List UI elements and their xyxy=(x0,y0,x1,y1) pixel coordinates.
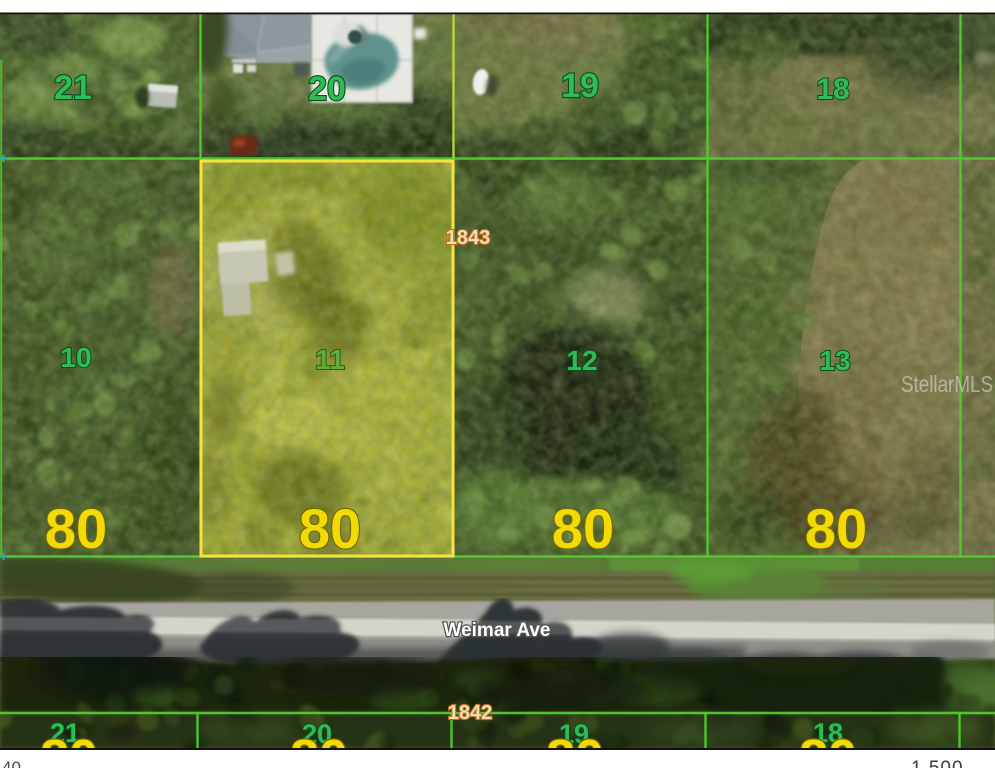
svg-text:19: 19 xyxy=(561,67,599,105)
svg-text:80: 80 xyxy=(45,497,107,560)
svg-text:StellarMLS: StellarMLS xyxy=(901,371,993,397)
svg-text:40: 40 xyxy=(2,758,21,768)
svg-text:1843: 1843 xyxy=(446,227,491,249)
svg-text:80: 80 xyxy=(299,497,361,560)
svg-text:12: 12 xyxy=(566,345,597,376)
svg-text:80: 80 xyxy=(805,497,867,560)
svg-text:Weimar Ave: Weimar Ave xyxy=(443,620,550,641)
svg-text:10: 10 xyxy=(60,342,91,373)
svg-text:80: 80 xyxy=(552,497,614,560)
svg-text:20: 20 xyxy=(308,70,346,108)
svg-text:1842: 1842 xyxy=(448,702,493,724)
svg-text:1,500: 1,500 xyxy=(911,758,964,768)
svg-text:11: 11 xyxy=(315,344,345,375)
svg-text:13: 13 xyxy=(819,345,850,376)
svg-text:18: 18 xyxy=(816,73,849,106)
svg-text:21: 21 xyxy=(54,69,92,107)
